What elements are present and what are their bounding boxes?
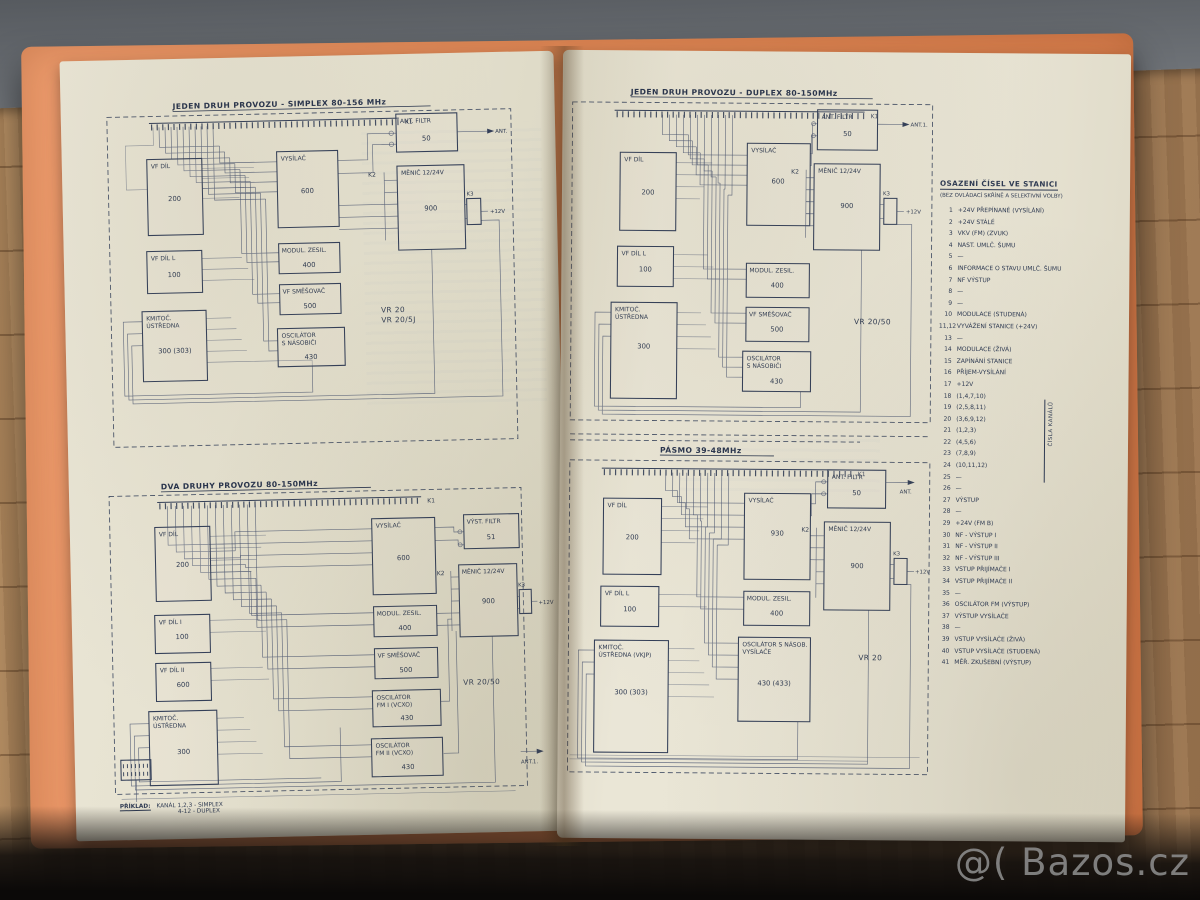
- legend-text: +24V PŘEPÍNANÉ (VYSÍLÁNÍ): [958, 205, 1044, 217]
- legend-text: VÝSTUP: [956, 495, 979, 507]
- legend-text: (10,11,12): [956, 460, 987, 472]
- wire-bundle: [673, 163, 720, 349]
- legend-number: 7: [939, 274, 957, 286]
- legend-number: 24: [938, 460, 956, 472]
- legend-text: VYVÁŽENÍ STANICE (+24V): [957, 321, 1037, 333]
- block-label: VF DÍL: [624, 156, 644, 163]
- connector-k2: [816, 528, 825, 598]
- variant-label: VR 20/50: [854, 317, 891, 326]
- legend-text: +24V STÁLÉ: [958, 216, 995, 228]
- legend-number: 35: [937, 587, 955, 599]
- arrowhead-icon: [487, 129, 494, 134]
- block-label: VF DÍL II: [160, 667, 185, 675]
- block-label: MODUL. ZESIL.: [377, 610, 422, 618]
- block-number: 300 (303): [158, 347, 192, 356]
- block-label: OSCILÁTOR: [747, 355, 781, 362]
- block-label: S NÁSOBIČI: [282, 339, 317, 347]
- block-number: 430: [770, 377, 783, 385]
- variant-label: VR 20: [381, 305, 405, 315]
- legend-text: —: [957, 286, 963, 298]
- legend-number: 5: [939, 251, 957, 263]
- block-number: 900: [424, 204, 437, 212]
- wire-bundle: [230, 529, 377, 760]
- bazos-watermark: @( Bazos.cz: [955, 841, 1190, 884]
- diagram-dva-druhy: DVA DRUHY PROVOZU 80-150MHz K1 VF DÍL 20…: [109, 474, 558, 803]
- block-label: ANT. FILTR: [400, 117, 431, 125]
- legend-text: NAST. UMLČ. ŠUMU: [958, 240, 1016, 252]
- legend-items: 1 +24V PŘEPÍNANÉ (VYSÍLÁNÍ) 2 +24V STÁLÉ…: [936, 205, 1116, 670]
- connector-k3: [467, 198, 482, 224]
- block-label: VF SMĚŠOVAČ: [749, 310, 792, 318]
- legend-text: —: [955, 622, 961, 634]
- legend-text: +12V: [956, 379, 973, 391]
- legend-text: MODULACE (ŽIVÁ): [957, 344, 1012, 356]
- legend-text: NF - VÝSTUP II: [955, 541, 998, 553]
- block-label: VF SMĚŠOVAČ: [283, 287, 326, 296]
- block-number: 200: [176, 561, 189, 569]
- legend-text: INFORMACE O STAVU UMLČ. ŠUMU: [957, 263, 1061, 275]
- supply-12v-label: +12V: [906, 209, 921, 215]
- block-number: 600: [772, 177, 785, 185]
- legend-number: 20: [938, 413, 956, 425]
- legend-number: 4: [940, 240, 958, 252]
- block-number: 50: [422, 134, 431, 142]
- block-label: KMITOČ.: [153, 715, 179, 723]
- right-page: JEDEN DRUH PROVOZU - DUPLEX 80-150MHz K1…: [557, 50, 1131, 842]
- connector-k3: [884, 198, 897, 224]
- block-number: 100: [623, 605, 636, 613]
- block-number: 100: [176, 633, 189, 641]
- legend-row: 7 NF VÝSTUP: [939, 274, 1115, 287]
- block-label: S NÁSOBIČI: [747, 363, 782, 370]
- block-number: 600: [177, 681, 190, 689]
- block-label: FM II (VCXO): [376, 749, 414, 757]
- connector-k2-label: K2: [791, 169, 799, 176]
- legend-text: VSTUP PŘIJÍMAČE I: [955, 564, 1011, 576]
- legend-subtitle: (BEZ OVLÁDACÍ SKŘÍNĚ A SELEKTIVNÍ VOLBY): [940, 193, 1116, 200]
- legend-number: 22: [938, 437, 956, 449]
- block-number: 200: [626, 533, 639, 541]
- legend-number: 23: [938, 448, 956, 460]
- legend-text: MODULACE (STUDENÁ): [957, 309, 1027, 321]
- legend-number: 33: [937, 564, 955, 576]
- wire: [122, 791, 516, 800]
- legend-text: (1,4,7,10): [956, 390, 986, 402]
- diagram-title: PÁSMO 39-48MHz: [660, 446, 742, 456]
- block-number: 100: [168, 271, 181, 279]
- block-number: 400: [771, 281, 784, 289]
- block-label: MĚNIČ 12/24V: [828, 525, 872, 533]
- legend-number: 29: [937, 518, 955, 530]
- legend-text: NF - VÝSTUP III: [955, 553, 999, 565]
- connector-k3-label: K3: [466, 191, 473, 197]
- legend-number: 14: [939, 344, 957, 356]
- legend-number: 6: [939, 263, 957, 275]
- legend-text: VSTUP VYSÍLAČE (ŽIVÁ): [954, 634, 1025, 646]
- block-number: 300 (303): [614, 688, 648, 696]
- legend-text: (3,6,9,12): [956, 414, 986, 426]
- block-number: 430: [401, 763, 414, 771]
- antenna-label: ANT.: [495, 129, 508, 135]
- block-label: MODUL. ZESIL.: [747, 595, 792, 602]
- block-label: VF SMĚŠOVAČ: [378, 651, 421, 660]
- diagram-duplex: JEDEN DRUH PROVOZU - DUPLEX 80-150MHz K1…: [570, 87, 933, 443]
- block-label: ÚSTŘEDNA: [615, 313, 649, 321]
- legend-number: 19: [938, 402, 956, 414]
- block-number: 900: [840, 202, 853, 210]
- mini-connector-grid: [121, 760, 151, 781]
- connector-k1-label: K1: [427, 497, 435, 504]
- legend-number: 27: [938, 495, 956, 507]
- block-label: ÚSTŘEDNA: [153, 721, 187, 730]
- block-number: 200: [168, 195, 181, 203]
- legend-number: 41: [936, 657, 954, 669]
- legend-number: 26: [938, 483, 956, 495]
- block-number: 930: [771, 529, 784, 537]
- block-label: KMITOČ.: [598, 644, 624, 651]
- block-number: 430: [400, 714, 413, 722]
- block-label: VF DÍL: [607, 502, 627, 509]
- legend-text: —: [957, 332, 963, 344]
- block-number: 430: [304, 353, 317, 361]
- legend-text: PŘÍJEM-VYSÍLÁNÍ: [957, 367, 1006, 379]
- block-number: 300: [177, 748, 190, 756]
- legend-number: 2: [940, 216, 958, 228]
- block-label: OSCILÁTOR: [375, 742, 409, 750]
- legend-number: 18: [938, 390, 956, 402]
- block-number: 900: [482, 597, 495, 605]
- block-number: 500: [399, 666, 412, 674]
- book-gutter-shadow: [540, 46, 584, 846]
- legend-text: —: [957, 251, 963, 263]
- legend-row: 41 MĚŘ. ZKUŠEBNÍ (VÝSTUP): [936, 657, 1112, 670]
- connector-k3: [894, 558, 907, 584]
- legend-text: VKV (FM) (ZVUK): [958, 228, 1009, 240]
- block-label: VF DÍL L: [151, 255, 176, 263]
- block-number: 400: [770, 609, 783, 617]
- block-label: MĚNIČ 12/24V: [462, 567, 506, 576]
- legend-number: 36: [937, 599, 955, 611]
- legend-number: 28: [937, 506, 955, 518]
- connector-k3-label: K3: [518, 582, 525, 588]
- arrowhead-icon: [908, 480, 915, 485]
- legend-number: 31: [937, 541, 955, 553]
- legend-row: 24 (10,11,12): [938, 460, 1114, 473]
- block-label: FM I (VCXO): [377, 701, 413, 709]
- legend-text: VÝSTUP VYSÍLAČE: [955, 611, 1009, 623]
- legend-text: —: [956, 472, 962, 484]
- legend-text: —: [957, 298, 963, 310]
- connector-k2-label: K2: [437, 570, 445, 577]
- legend-number: 11,12: [939, 321, 957, 333]
- legend-row: 4 NAST. UMLČ. ŠUMU: [940, 240, 1116, 253]
- legend-text: NF - VÝSTUP I: [955, 530, 996, 542]
- legend-row: 34 VSTUP PŘIJÍMAČE II: [937, 576, 1113, 589]
- block-label: ÚSTŘEDNA: [146, 321, 180, 330]
- legend-number: 40: [936, 645, 954, 657]
- legend-text: (7,8,9): [956, 448, 976, 460]
- block-number: 500: [770, 325, 783, 333]
- legend-text: —: [955, 587, 961, 599]
- antenna-lead: [457, 131, 487, 132]
- left-page: JEDEN DRUH PROVOZU - SIMPLEX 80-156 MHz …: [60, 51, 571, 842]
- block-number: 400: [398, 624, 411, 632]
- arrowhead-icon: [903, 122, 910, 127]
- block-label: VYSÍLAČ: [376, 522, 401, 530]
- legend-text: NF VÝSTUP: [957, 274, 990, 286]
- legend-text: ZAPÍNÁNÍ STANICE: [957, 356, 1013, 368]
- connector-strip: [149, 118, 399, 123]
- legend-number: 37: [937, 611, 955, 623]
- connector-k2-label: K2: [801, 527, 809, 534]
- block-label: ANT. FILTR: [822, 114, 853, 121]
- variant-label: VR 20: [858, 653, 882, 662]
- diagram-pasmo: PÁSMO 39-48MHz K1 VF DÍL 200 VF DÍL L: [567, 445, 931, 775]
- block-label: OSCILÁTOR: [282, 332, 316, 340]
- wire-bundle: [687, 135, 748, 377]
- legend-text: —: [955, 506, 961, 518]
- diagram-title: JEDEN DRUH PROVOZU - DUPLEX 80-150MHz: [630, 87, 838, 98]
- block-label: ÚSTŘEDNA (VKJP): [598, 651, 651, 659]
- left-page-schematics: JEDEN DRUH PROVOZU - SIMPLEX 80-156 MHz …: [60, 51, 571, 842]
- legend-number: 16: [939, 367, 957, 379]
- block-label: VYSÍLAČE: [742, 649, 771, 656]
- legend-number: 34: [937, 576, 955, 588]
- legend-number: 3: [940, 228, 958, 240]
- variant-label: VR 20/50: [463, 677, 500, 687]
- legend-row: 27 VÝSTUP: [938, 495, 1114, 508]
- block-number: 900: [851, 562, 864, 570]
- photo-scene: JEDEN DRUH PROVOZU - SIMPLEX 80-156 MHz …: [0, 0, 1200, 900]
- legend-number: 8: [939, 286, 957, 298]
- legend-number: 39: [936, 634, 954, 646]
- block-number: 100: [639, 265, 652, 273]
- block-number: 600: [301, 187, 314, 195]
- block-label: VYSÍLAČ: [749, 497, 774, 504]
- block-label: OSCILÁTOR: [376, 694, 410, 702]
- block-label: MODUL. ZESIL.: [749, 267, 794, 274]
- block-label: VF DÍL L: [621, 250, 646, 257]
- legend-text: (4,5,6): [956, 437, 976, 449]
- block-label: MĚNIČ 12/24V: [818, 167, 862, 175]
- supply-12v-label: +12V: [490, 209, 506, 215]
- block-label: VF DÍL: [159, 531, 179, 538]
- title-underline: [660, 455, 774, 456]
- channels-bracket-label: ČÍSLA KANÁLŮ: [1048, 402, 1054, 447]
- block-label: OSCILÁTOR S NÁSOB.: [742, 641, 807, 649]
- legend-number: 30: [937, 529, 955, 541]
- connector-k3: [519, 589, 532, 613]
- legend-text: (1,2,3): [956, 425, 976, 437]
- legend-text: VSTUP PŘIJÍMAČE II: [955, 576, 1012, 588]
- legend-number: 25: [938, 471, 956, 483]
- block-number: 50: [843, 130, 852, 138]
- legend-number: 10: [939, 309, 957, 321]
- legend-number: 13: [939, 332, 957, 344]
- block-number: 300: [637, 342, 650, 350]
- block-number: 430 (433): [757, 679, 791, 687]
- legend-number: 1: [940, 205, 958, 217]
- inter-diagram-wires: [570, 434, 928, 443]
- legend-text: (2,5,8,11): [956, 402, 986, 414]
- variant-label: VR 20/5J: [381, 315, 416, 325]
- antenna-label: ANT.1.: [521, 759, 539, 765]
- legend-number: 21: [938, 425, 956, 437]
- legend-text: MĚŘ. ZKUŠEBNÍ (VÝSTUP): [954, 657, 1031, 669]
- block-label: KMITOČ.: [615, 306, 641, 313]
- connector-strip: [602, 468, 852, 470]
- block-label: ANT. FILTR: [832, 474, 863, 481]
- antenna-label: ANT.1.: [910, 123, 928, 129]
- legend-number: 9: [939, 297, 957, 309]
- block-number: 400: [302, 261, 315, 269]
- block-number: 50: [852, 489, 861, 497]
- legend-text: +24V (FM B): [955, 518, 993, 530]
- block-label: MĚNIČ 12/24V: [401, 168, 445, 177]
- connector-k2: [384, 172, 398, 240]
- antenna-label: ANT.: [900, 489, 912, 495]
- block-label: VF DÍL I: [159, 619, 182, 627]
- legend-number: 15: [939, 355, 957, 367]
- connector-k3-label: K3: [883, 191, 890, 197]
- block-label: VF DÍL: [151, 163, 171, 170]
- block-number: 500: [303, 302, 316, 310]
- block-label: VF DÍL L: [605, 590, 630, 597]
- legend-number: 17: [938, 379, 956, 391]
- connector-teeth: [604, 472, 852, 474]
- legend-text: —: [956, 483, 962, 495]
- connector-k3-label: K3: [893, 551, 900, 557]
- diagram-simplex: JEDEN DRUH PROVOZU - SIMPLEX 80-156 MHz …: [106, 95, 517, 448]
- supply-12v-label: +12V: [915, 570, 930, 576]
- legend-number: 32: [937, 553, 955, 565]
- legend-text: VSTUP VYSÍLAČE (STUDENÁ): [954, 645, 1040, 657]
- legend-panel: OSAZENÍ ČÍSEL VE STANICI (BEZ OVLÁDACÍ S…: [936, 171, 1116, 670]
- block-number: 600: [397, 554, 410, 562]
- connector-k2-label: K2: [368, 172, 376, 179]
- block-label: VÝST. FILTR: [467, 518, 501, 526]
- legend-row: 11,12 VYVÁŽENÍ STANICE (+24V): [939, 321, 1115, 334]
- block-label: VYSÍLAČ: [281, 155, 306, 163]
- legend-title: OSAZENÍ ČÍSEL VE STANICI: [940, 179, 1058, 191]
- block-number: 51: [487, 533, 496, 541]
- block-label: KMITOČ.: [146, 315, 172, 323]
- block-label: MODUL. ZESIL.: [282, 247, 327, 255]
- legend-text: OSCILÁTOR FM (VÝSTUP): [955, 599, 1030, 611]
- wire-bundle: [337, 133, 398, 229]
- legend-number: 38: [937, 622, 955, 634]
- legend-row: 37 VÝSTUP VYSÍLAČE: [937, 611, 1113, 624]
- block-label: VYSÍLAČ: [751, 147, 776, 154]
- diagram-title: DVA DRUHY PROVOZU 80-150MHz: [161, 479, 319, 491]
- block-number: 200: [641, 188, 654, 196]
